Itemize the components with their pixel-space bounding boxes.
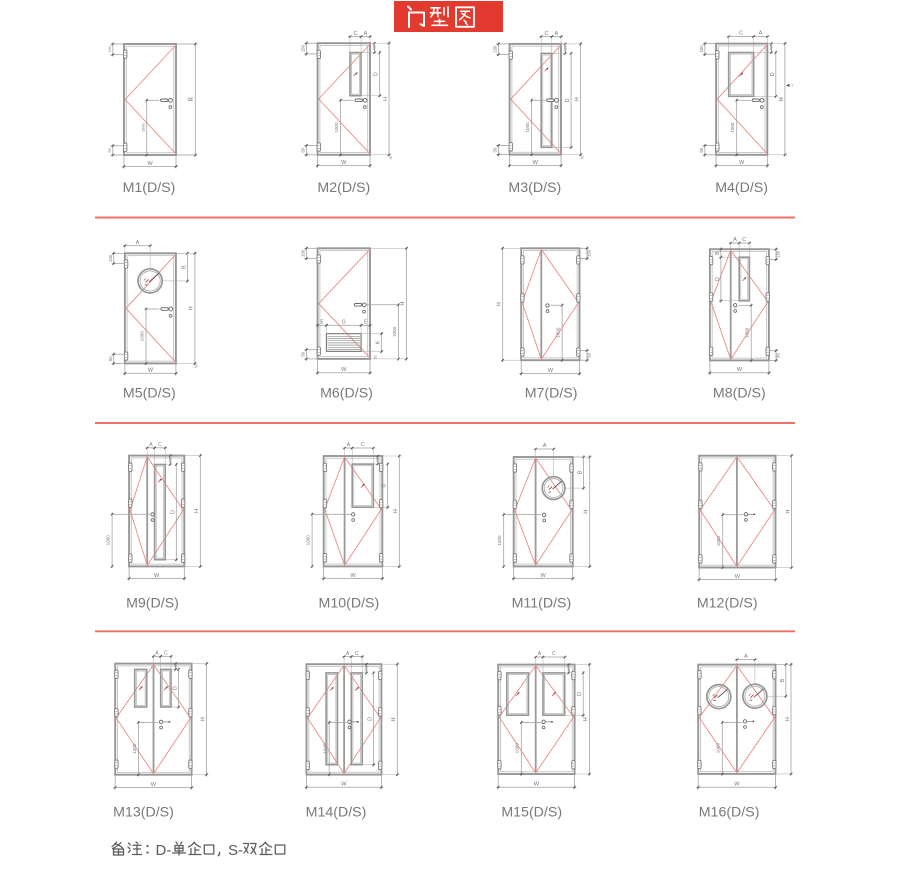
svg-text:M15(D/S): M15(D/S) bbox=[501, 805, 562, 821]
svg-text:C: C bbox=[742, 237, 746, 243]
svg-text:150: 150 bbox=[108, 46, 112, 52]
svg-text:50: 50 bbox=[108, 148, 112, 152]
svg-text:50: 50 bbox=[374, 355, 378, 359]
svg-text:W: W bbox=[735, 574, 741, 580]
svg-text:H: H bbox=[583, 717, 589, 721]
svg-text:H: H bbox=[584, 510, 590, 514]
svg-text:M5(D/S): M5(D/S) bbox=[123, 386, 176, 402]
svg-text:A: A bbox=[744, 654, 748, 660]
svg-text:H: H bbox=[779, 97, 785, 101]
svg-text:1000: 1000 bbox=[716, 536, 721, 547]
svg-text:W: W bbox=[737, 367, 743, 373]
svg-text:D: D bbox=[368, 717, 374, 721]
svg-text:C: C bbox=[361, 442, 365, 448]
svg-text:1000: 1000 bbox=[525, 122, 530, 133]
svg-text:M11(D/S): M11(D/S) bbox=[512, 596, 572, 612]
svg-text:D: D bbox=[382, 484, 388, 488]
svg-text:465: 465 bbox=[168, 457, 172, 463]
svg-text:A: A bbox=[364, 31, 368, 37]
svg-text:50: 50 bbox=[389, 156, 393, 160]
svg-text:H: H bbox=[785, 510, 791, 514]
svg-text:D: D bbox=[577, 692, 583, 696]
svg-text:465: 465 bbox=[376, 457, 380, 463]
svg-text:W: W bbox=[341, 782, 347, 788]
svg-text:H: H bbox=[383, 97, 389, 101]
svg-text:50: 50 bbox=[301, 147, 306, 152]
svg-text:H: H bbox=[194, 509, 200, 513]
svg-text:W: W bbox=[533, 160, 539, 166]
svg-text:1000: 1000 bbox=[334, 122, 339, 133]
svg-text:H: H bbox=[200, 717, 206, 721]
svg-text:D: D bbox=[170, 510, 176, 514]
svg-text:M10(D/S): M10(D/S) bbox=[319, 596, 380, 612]
svg-text:M16(D/S): M16(D/S) bbox=[699, 805, 760, 821]
svg-text:150: 150 bbox=[587, 249, 592, 257]
svg-text:50: 50 bbox=[776, 353, 781, 358]
svg-text:A: A bbox=[136, 240, 140, 246]
svg-text:W: W bbox=[341, 367, 347, 373]
svg-text:W: W bbox=[147, 161, 153, 167]
svg-text:W: W bbox=[151, 782, 157, 788]
svg-text:1000: 1000 bbox=[730, 122, 735, 133]
svg-text:1000: 1000 bbox=[497, 535, 502, 546]
svg-text:1000: 1000 bbox=[139, 331, 144, 342]
svg-text:A: A bbox=[346, 651, 350, 657]
svg-text:D: D bbox=[770, 72, 776, 76]
svg-text:50: 50 bbox=[108, 356, 113, 361]
svg-text:D: D bbox=[715, 277, 721, 281]
svg-text:H: H bbox=[574, 97, 580, 101]
svg-text:1000: 1000 bbox=[141, 122, 146, 132]
svg-text:465: 465 bbox=[563, 46, 567, 52]
svg-text:C: C bbox=[355, 651, 359, 657]
svg-text:C: C bbox=[164, 651, 168, 657]
svg-text:M3(D/S): M3(D/S) bbox=[508, 180, 561, 196]
svg-text:M2(D/S): M2(D/S) bbox=[317, 180, 370, 196]
svg-text:A: A bbox=[555, 31, 559, 37]
svg-text:5: 5 bbox=[792, 83, 794, 87]
svg-text:A: A bbox=[733, 237, 737, 243]
svg-text:W: W bbox=[154, 573, 160, 579]
svg-text:W: W bbox=[548, 368, 554, 374]
svg-text:A: A bbox=[538, 651, 542, 657]
svg-text:50: 50 bbox=[301, 351, 306, 356]
svg-text:A: A bbox=[347, 442, 351, 448]
svg-text:1000: 1000 bbox=[716, 743, 721, 754]
svg-text:A: A bbox=[155, 651, 159, 657]
svg-text:50: 50 bbox=[699, 147, 704, 152]
svg-text:H: H bbox=[189, 306, 195, 310]
svg-text:M1(D/S): M1(D/S) bbox=[123, 180, 176, 196]
svg-text:1000: 1000 bbox=[323, 743, 328, 754]
svg-text:465: 465 bbox=[174, 664, 178, 670]
svg-text:C: C bbox=[544, 31, 548, 37]
svg-text:M6(D/S): M6(D/S) bbox=[320, 386, 373, 402]
svg-text:M12(D/S): M12(D/S) bbox=[697, 596, 758, 612]
svg-text:150: 150 bbox=[776, 250, 781, 258]
svg-text:A: A bbox=[149, 442, 153, 448]
svg-text:50: 50 bbox=[493, 147, 498, 152]
svg-text:H: H bbox=[391, 717, 397, 721]
svg-text:C: C bbox=[739, 31, 743, 37]
svg-text:D: D bbox=[173, 686, 179, 690]
svg-text:W: W bbox=[350, 573, 356, 579]
svg-text:H: H bbox=[393, 509, 399, 513]
svg-text:D: D bbox=[565, 98, 571, 102]
svg-text:E: E bbox=[320, 320, 324, 326]
svg-text:M4(D/S): M4(D/S) bbox=[715, 180, 768, 196]
svg-text:M13(D/S): M13(D/S) bbox=[113, 805, 174, 821]
svg-text:1000: 1000 bbox=[745, 327, 750, 338]
svg-text:H: H bbox=[497, 302, 503, 306]
svg-text:150: 150 bbox=[699, 45, 704, 53]
svg-text:1000: 1000 bbox=[106, 535, 111, 546]
svg-text:M7(D/S): M7(D/S) bbox=[525, 386, 578, 402]
svg-text:W: W bbox=[541, 573, 547, 579]
svg-text:H: H bbox=[785, 717, 791, 721]
svg-text:G: G bbox=[342, 320, 346, 326]
svg-text:M14(D/S): M14(D/S) bbox=[306, 805, 367, 821]
svg-text:D-: D- bbox=[156, 842, 172, 859]
svg-text:50: 50 bbox=[195, 364, 199, 368]
svg-text:465: 465 bbox=[373, 45, 377, 51]
svg-text:W: W bbox=[341, 160, 347, 166]
svg-text:1000: 1000 bbox=[132, 743, 137, 754]
svg-text:A: A bbox=[543, 443, 547, 449]
svg-text:150: 150 bbox=[493, 45, 498, 53]
svg-text:C: C bbox=[552, 651, 556, 657]
svg-text:1000: 1000 bbox=[556, 327, 561, 338]
svg-text:1000: 1000 bbox=[515, 743, 520, 754]
svg-text:465: 465 bbox=[770, 45, 774, 51]
svg-text:H: H bbox=[400, 302, 406, 306]
svg-text:C: C bbox=[158, 442, 162, 448]
svg-text:B: B bbox=[780, 678, 786, 682]
svg-text:D: D bbox=[374, 72, 380, 76]
svg-text:M9(D/S): M9(D/S) bbox=[126, 596, 179, 612]
svg-text:W: W bbox=[148, 368, 154, 374]
svg-text:B: B bbox=[578, 470, 584, 474]
svg-text:150: 150 bbox=[301, 44, 306, 52]
svg-text:465: 465 bbox=[365, 666, 369, 672]
svg-text:50: 50 bbox=[587, 352, 592, 357]
svg-text:150: 150 bbox=[108, 254, 113, 262]
svg-text:1000: 1000 bbox=[306, 535, 311, 546]
svg-text:1000: 1000 bbox=[392, 326, 397, 337]
svg-text:A: A bbox=[759, 31, 763, 37]
svg-text:50: 50 bbox=[580, 155, 584, 159]
svg-text:W: W bbox=[739, 160, 745, 166]
svg-text:B: B bbox=[181, 265, 187, 269]
svg-text:150: 150 bbox=[301, 249, 306, 257]
svg-text:W: W bbox=[534, 782, 540, 788]
svg-text:K: K bbox=[376, 340, 382, 344]
svg-text:C: C bbox=[353, 31, 357, 37]
svg-text:W: W bbox=[734, 782, 740, 788]
svg-text:S-: S- bbox=[228, 842, 243, 859]
svg-text:M8(D/S): M8(D/S) bbox=[713, 386, 766, 402]
svg-text:465: 465 bbox=[567, 666, 571, 672]
